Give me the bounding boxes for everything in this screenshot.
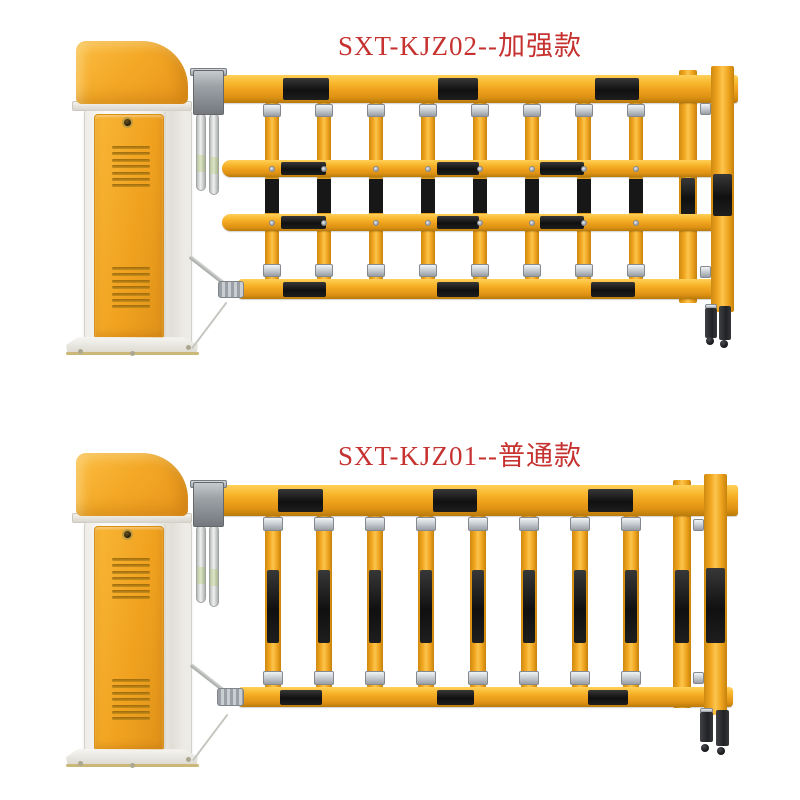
picket-stripe-black: [318, 570, 330, 643]
door-vent-lower: [112, 685, 150, 688]
picket-clamp-bottom: [365, 671, 385, 685]
rail-stripe-black: [437, 690, 474, 705]
door-vent-upper: [112, 596, 150, 599]
cabinet-side-edge: [164, 524, 166, 755]
picket-clamp-top: [519, 517, 539, 531]
balance-spring-band: [197, 567, 205, 584]
picket-clamp-bottom: [314, 671, 334, 685]
door-vent-upper: [112, 577, 150, 580]
picket-clamp-bottom: [519, 671, 539, 685]
rail-stripe-black: [278, 489, 323, 512]
balance-spring-rod: [196, 525, 206, 603]
base-anchor-bolt: [130, 763, 135, 768]
picket-clamp-top: [365, 517, 385, 531]
door-vent-lower: [112, 717, 150, 720]
picket-clamp-top: [468, 517, 488, 531]
support-leg: [716, 710, 729, 746]
cabinet-keyhole: [122, 529, 133, 540]
picket-clamp-top: [416, 517, 436, 531]
end-post-clamp: [693, 519, 704, 531]
door-vent-upper: [112, 571, 150, 574]
arm-coupler: [217, 688, 244, 706]
rail-stripe-black: [588, 690, 628, 705]
arm-mount-bracket: [193, 482, 224, 527]
picket-clamp-top: [263, 517, 283, 531]
door-vent-upper: [112, 564, 150, 567]
door-vent-upper: [112, 584, 150, 587]
picket-stripe-black: [523, 570, 535, 643]
picket-stripe-black: [267, 570, 279, 643]
support-leg-foot: [701, 744, 709, 752]
picket-clamp-top: [621, 517, 641, 531]
picket-clamp-bottom: [263, 671, 283, 685]
door-vent-lower: [112, 711, 150, 714]
rail-stripe-black: [433, 489, 477, 512]
picket-clamp-bottom: [416, 671, 436, 685]
door-vent-lower: [112, 705, 150, 708]
balance-spring-rod: [209, 525, 219, 607]
picket-clamp-bottom: [621, 671, 641, 685]
support-leg: [700, 712, 713, 742]
picket-stripe-black: [472, 570, 484, 643]
picket-stripe-black: [420, 570, 432, 643]
picket-clamp-top: [570, 517, 590, 531]
picket-stripe-black: [625, 570, 637, 643]
door-vent-lower: [112, 698, 150, 701]
picket-clamp-top: [314, 517, 334, 531]
rail-stripe-black: [280, 690, 322, 705]
door-vent-upper: [112, 590, 150, 593]
picket-stripe-black: [574, 570, 586, 643]
door-vent-lower: [112, 679, 150, 682]
barrier-gate-photo-kjz01: [0, 0, 800, 800]
end-post-clamp: [693, 672, 704, 684]
product-catalog-image: SXT-KJZ02--加强款 SXT-KJZ01--普通款: [0, 0, 800, 800]
base-anchor-bolt: [78, 761, 83, 766]
end-post-stripe-black: [675, 570, 689, 643]
base-anchor-bolt: [186, 757, 191, 762]
cabinet-cap: [76, 453, 188, 516]
door-vent-lower: [112, 692, 150, 695]
balance-spring-band: [210, 569, 218, 586]
picket-stripe-black: [369, 570, 381, 643]
door-vent-upper: [112, 558, 150, 561]
picket-clamp-bottom: [468, 671, 488, 685]
support-leg-foot: [717, 747, 725, 755]
end-post-stripe-black: [706, 568, 725, 643]
rail-stripe-black: [588, 489, 633, 512]
support-wire: [192, 714, 229, 762]
picket-clamp-bottom: [570, 671, 590, 685]
